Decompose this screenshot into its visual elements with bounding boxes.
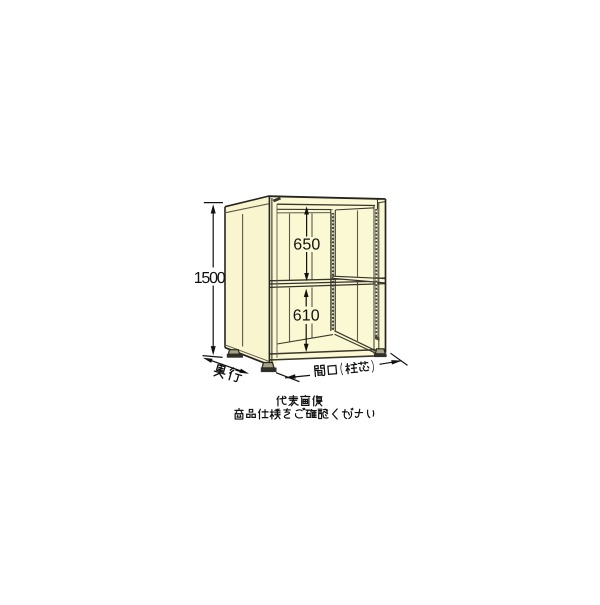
svg-text:610: 610 [293, 308, 320, 325]
svg-text:1500: 1500 [194, 270, 226, 287]
svg-text:650: 650 [293, 237, 320, 254]
